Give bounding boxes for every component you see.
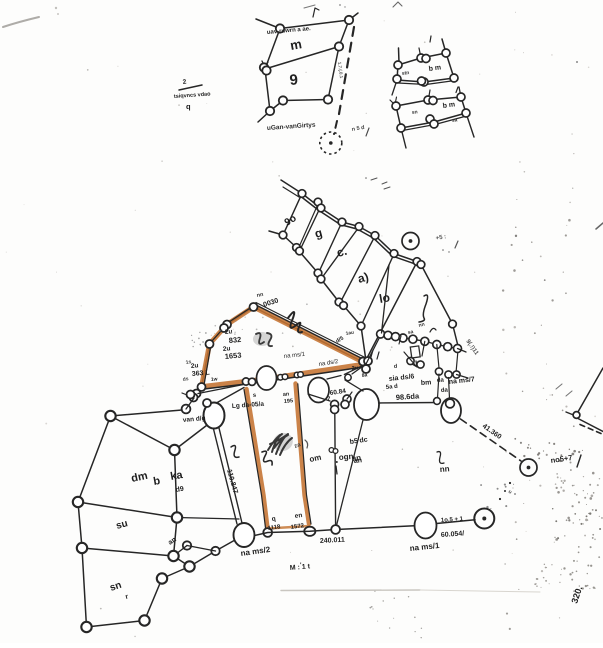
svg-text:stn: stn bbox=[401, 70, 409, 77]
svg-text:d9: d9 bbox=[175, 486, 184, 494]
svg-text:en: en bbox=[294, 512, 303, 520]
svg-text:1w: 1w bbox=[211, 376, 218, 383]
svg-text:195: 195 bbox=[284, 398, 294, 405]
svg-text:9: 9 bbox=[289, 71, 299, 89]
svg-text:1653: 1653 bbox=[224, 351, 241, 361]
svg-text:an: an bbox=[351, 453, 361, 463]
svg-text:d: d bbox=[394, 364, 398, 370]
svg-text:da: da bbox=[441, 387, 449, 394]
svg-text:q: q bbox=[186, 102, 191, 111]
svg-text:8a: 8a bbox=[361, 372, 368, 379]
svg-text:240.011: 240.011 bbox=[320, 537, 345, 545]
svg-text:5a d: 5a d bbox=[386, 384, 399, 391]
svg-text:sn: sn bbox=[411, 109, 418, 116]
svg-text:2u: 2u bbox=[351, 365, 358, 372]
svg-text:sa: sa bbox=[451, 117, 458, 124]
svg-text:832: 832 bbox=[228, 335, 241, 345]
svg-text:nn: nn bbox=[439, 464, 450, 474]
svg-text:2u: 2u bbox=[191, 362, 199, 370]
svg-text:bm: bm bbox=[421, 379, 432, 387]
svg-text:98.6da: 98.6da bbox=[396, 391, 421, 402]
svg-text:an: an bbox=[283, 391, 291, 398]
